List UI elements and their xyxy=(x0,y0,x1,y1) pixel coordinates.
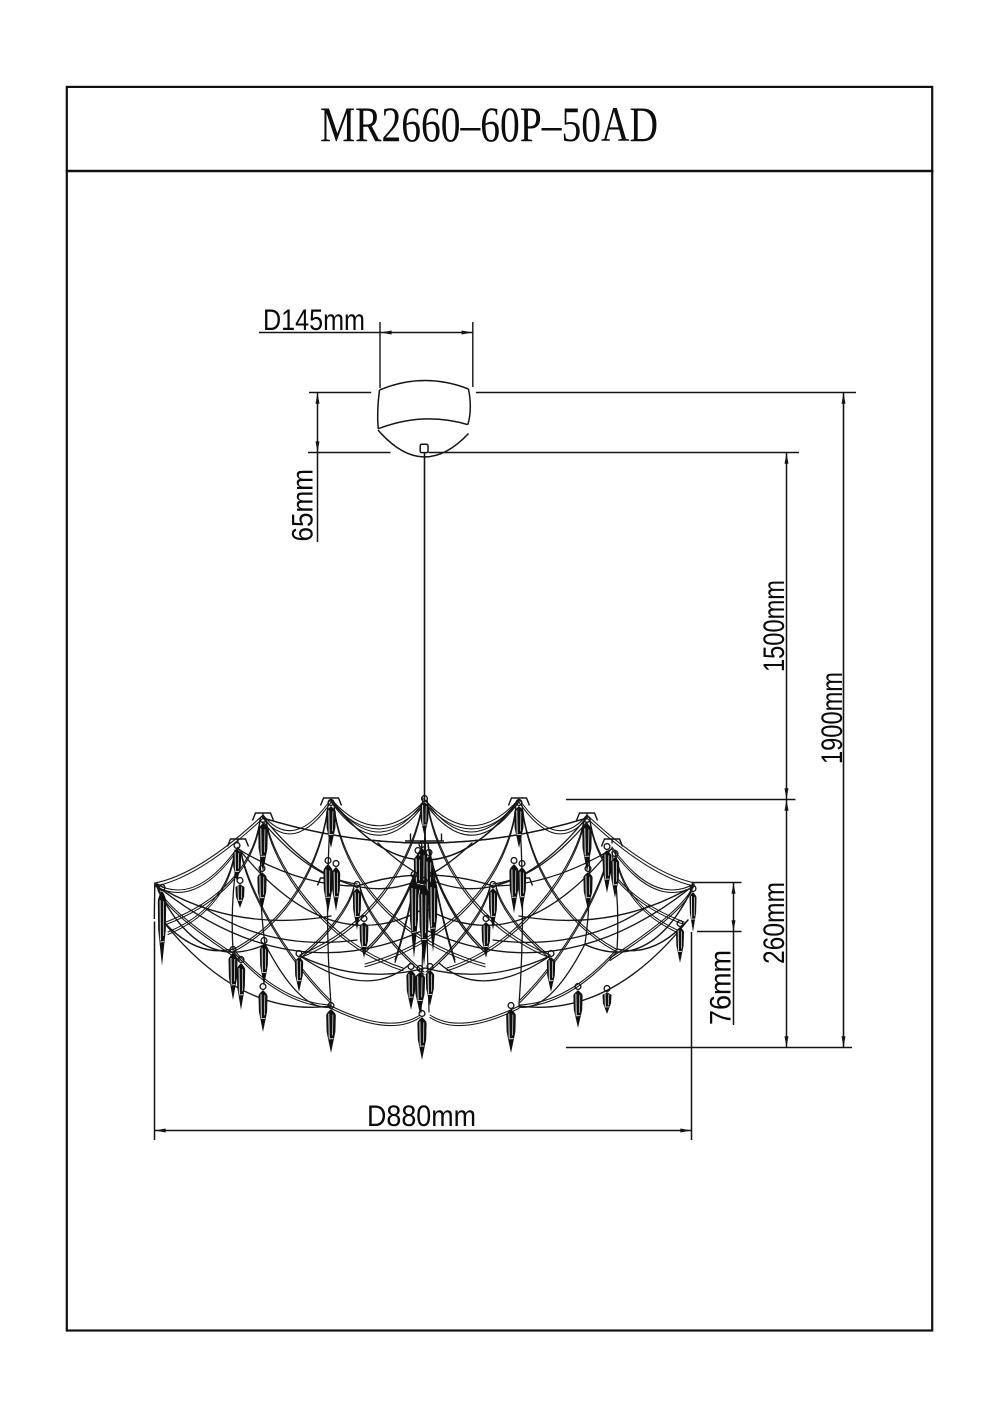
svg-text:260mm: 260mm xyxy=(758,882,791,964)
svg-text:1500mm: 1500mm xyxy=(758,580,791,672)
svg-text:D880mm: D880mm xyxy=(367,1100,476,1133)
svg-text:65mm: 65mm xyxy=(287,469,320,542)
svg-text:76mm: 76mm xyxy=(705,950,738,1025)
svg-text:1900mm: 1900mm xyxy=(816,672,849,764)
svg-text:MR2660–60P–50AD: MR2660–60P–50AD xyxy=(320,96,658,152)
